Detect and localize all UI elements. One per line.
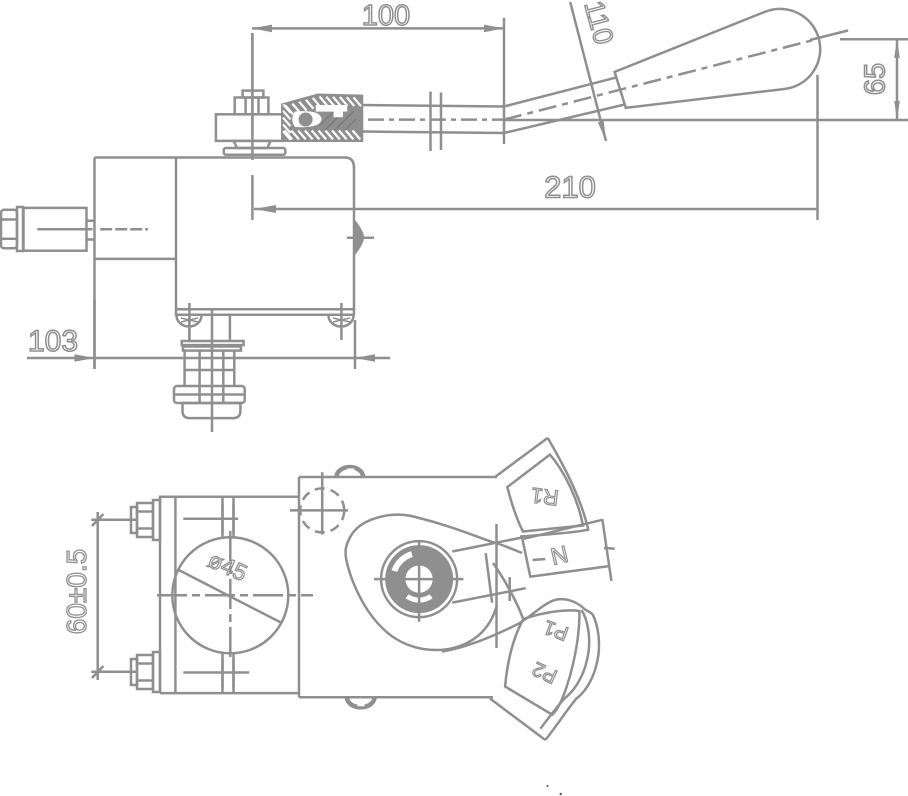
svg-text:P1: P1 [541,615,572,644]
svg-text:P2: P2 [529,657,560,687]
svg-text:210: 210 [544,170,596,205]
svg-text:60±0.5: 60±0.5 [61,549,92,634]
svg-text:65: 65 [860,63,892,95]
svg-text:R1: R1 [530,483,560,510]
svg-text:N: N [548,541,570,570]
svg-text:ø45: ø45 [204,546,251,586]
svg-text:110: 110 [579,0,620,48]
svg-text:103: 103 [28,325,78,358]
